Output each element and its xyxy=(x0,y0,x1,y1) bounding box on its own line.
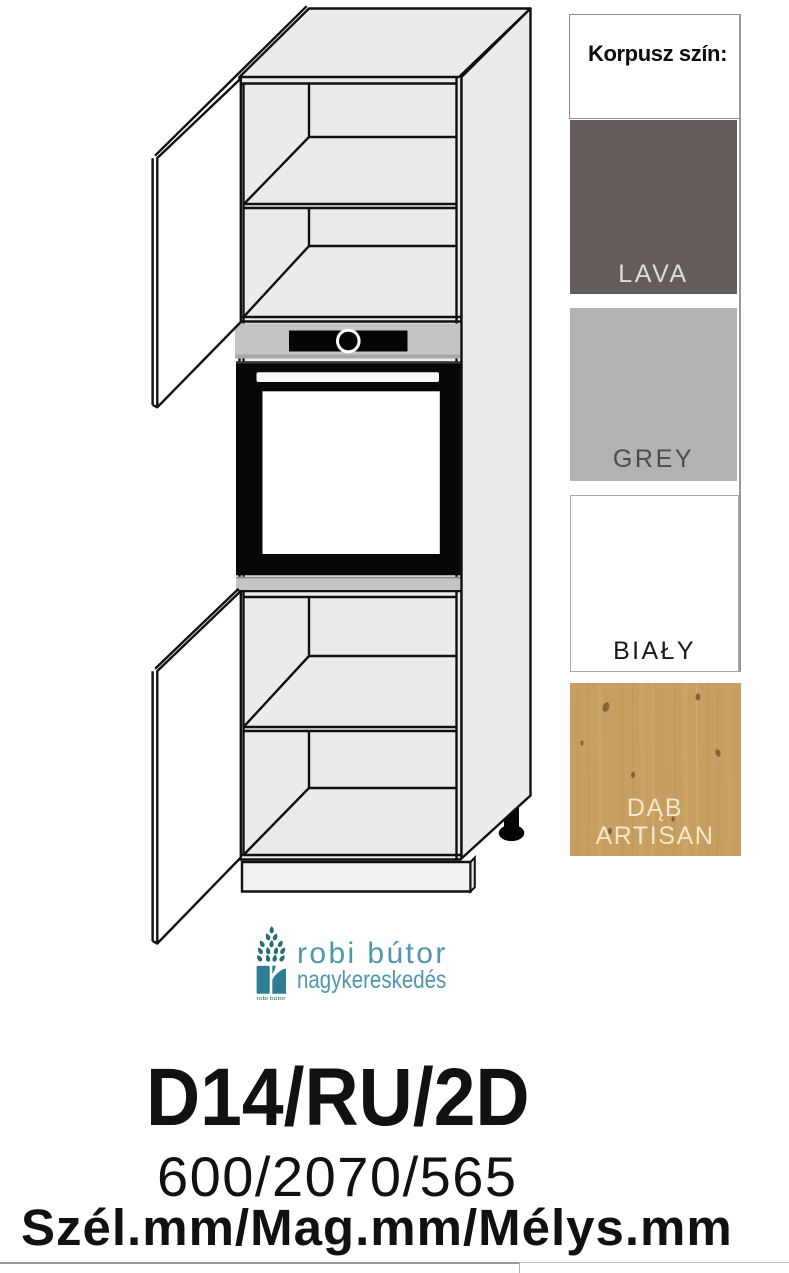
svg-text:robi bútor: robi bútor xyxy=(257,996,286,1002)
